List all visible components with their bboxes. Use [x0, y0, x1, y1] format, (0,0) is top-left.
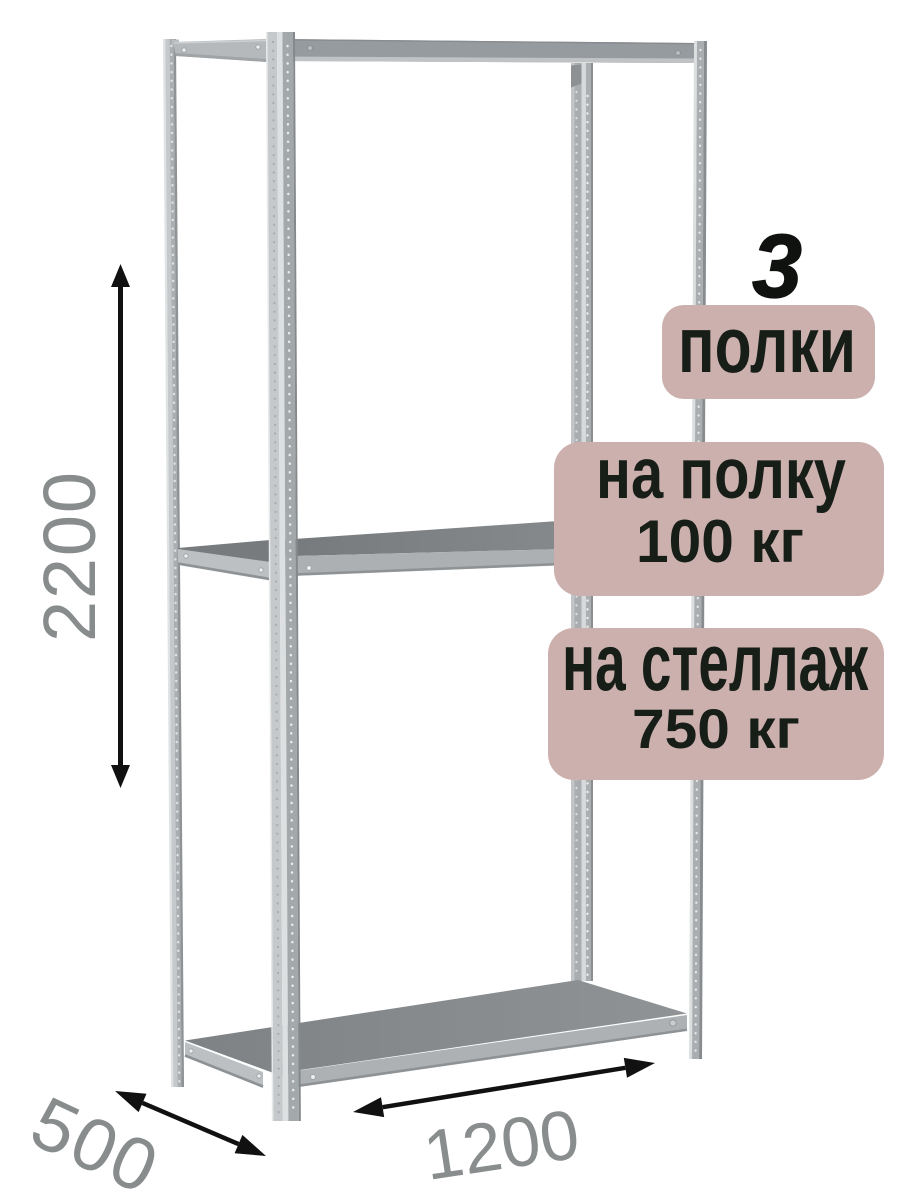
- svg-text:1200: 1200: [419, 1095, 585, 1195]
- svg-text:2200: 2200: [28, 472, 111, 642]
- svg-text:полки: полки: [678, 300, 856, 389]
- svg-text:100 кг: 100 кг: [636, 508, 804, 575]
- svg-text:500: 500: [19, 1080, 171, 1200]
- svg-text:750 кг: 750 кг: [632, 697, 800, 760]
- svg-text:на стеллаж: на стеллаж: [562, 618, 869, 708]
- svg-text:на полку: на полку: [596, 435, 846, 514]
